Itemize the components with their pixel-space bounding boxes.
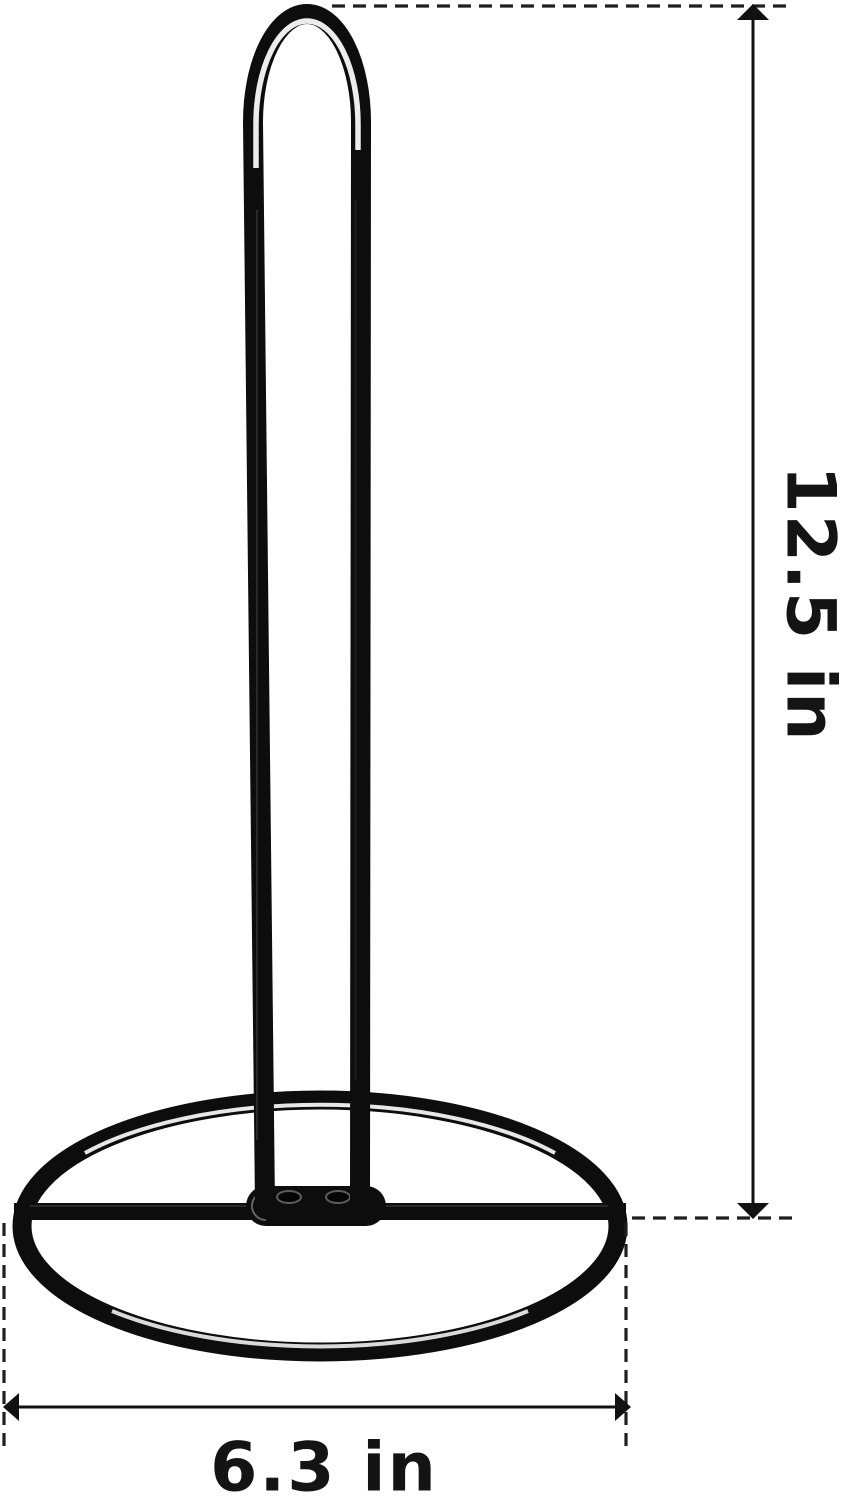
width-dimension	[3, 1393, 631, 1421]
upright-rod-group	[253, 14, 361, 1206]
base-crossbar-group	[14, 1186, 626, 1226]
height-dimension	[737, 4, 769, 1219]
width-dimension-label: 6.3 in	[210, 1429, 438, 1500]
mounting-hole-left	[277, 1191, 301, 1203]
arrow-right-icon	[615, 1393, 631, 1421]
extension-lines	[4, 6, 794, 1448]
height-dimension-label: 12.5 in	[771, 465, 841, 742]
hairpin-rod	[253, 14, 361, 1206]
mounting-hole-right	[326, 1191, 350, 1203]
dimension-diagram: 12.5 in 6.3 in	[0, 0, 841, 1500]
product-illustration	[0, 0, 841, 1500]
